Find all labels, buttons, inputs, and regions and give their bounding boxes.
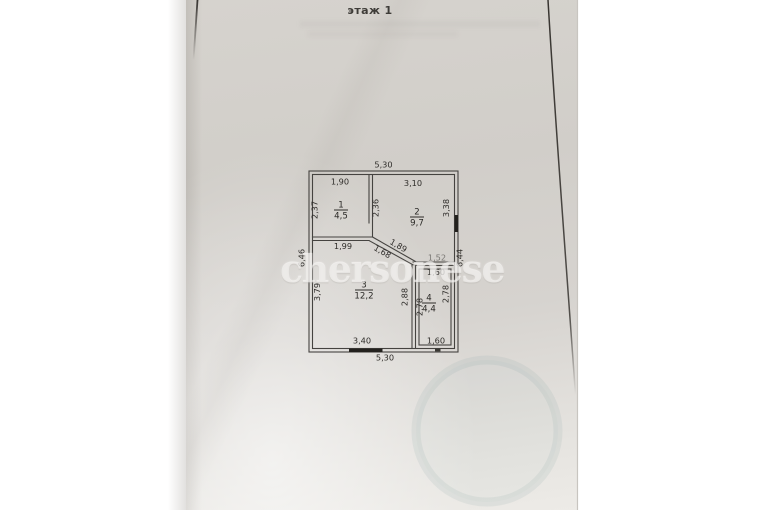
dim-room2-right: 3,38 bbox=[441, 199, 451, 217]
dim-overall-bottom: 5,30 bbox=[376, 353, 394, 363]
wall-room1-bottom bbox=[313, 237, 373, 241]
paper-edge-line-left bbox=[194, 0, 198, 60]
window-mark-right-wall bbox=[455, 215, 458, 232]
room1-number: 1 bbox=[338, 201, 343, 211]
dim-room2-top: 3,10 bbox=[404, 178, 422, 188]
dim-overall-right: 6,44 bbox=[455, 249, 465, 267]
dim-overall-left: 6,46 bbox=[297, 249, 307, 267]
wall-room2-room4 bbox=[413, 262, 455, 266]
room3-area: 12,2 bbox=[354, 292, 373, 302]
room4-number: 4 bbox=[426, 294, 431, 304]
dimension-labels: 5,30 1,90 3,10 2,37 2,36 3,38 1,99 1,68 … bbox=[297, 160, 465, 363]
paper-fold-line bbox=[548, 0, 576, 395]
entrance-door-mark bbox=[349, 349, 383, 352]
room2-area: 9,7 bbox=[410, 219, 424, 229]
dim-room1-left: 2,37 bbox=[310, 201, 320, 219]
room2-number: 2 bbox=[414, 208, 419, 218]
dim-room3-bottom: 3,40 bbox=[353, 336, 371, 346]
dim-room4-top-outer: 1,52 bbox=[428, 253, 446, 263]
room3-number: 3 bbox=[361, 281, 366, 291]
room4-area: 4,4 bbox=[422, 305, 436, 315]
dim-room3-top: 1,99 bbox=[334, 241, 352, 251]
dim-room3-right: 2,88 bbox=[400, 288, 410, 306]
room1-area: 4,5 bbox=[334, 212, 348, 222]
dim-room1-right: 2,36 bbox=[371, 199, 381, 217]
dim-overall-top: 5,30 bbox=[374, 160, 392, 170]
stamp-mark bbox=[416, 360, 558, 502]
door-tick-mark bbox=[435, 349, 441, 352]
dim-room4-top: 1,60 bbox=[427, 267, 445, 277]
dim-room3-left: 3,79 bbox=[312, 283, 322, 301]
photographed-document: этаж 1 bbox=[0, 0, 770, 510]
dim-room4-bottom: 1,60 bbox=[427, 336, 445, 346]
dim-room1-top: 1,90 bbox=[331, 177, 349, 187]
dim-room4-right: 2,78 bbox=[441, 285, 451, 303]
floor-plan-drawing: 5,30 1,90 3,10 2,37 2,36 3,38 1,99 1,68 … bbox=[0, 0, 770, 510]
